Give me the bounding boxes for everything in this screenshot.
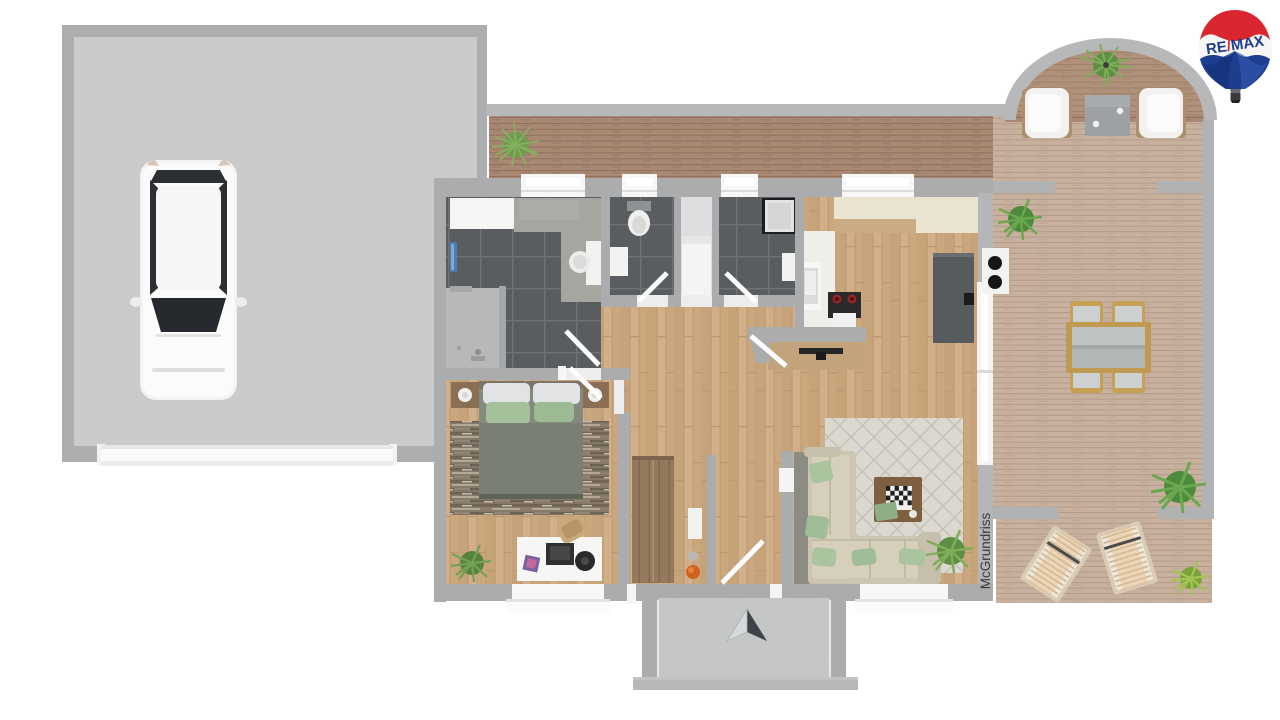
svg-text:McGrundriss: McGrundriss: [978, 512, 993, 589]
